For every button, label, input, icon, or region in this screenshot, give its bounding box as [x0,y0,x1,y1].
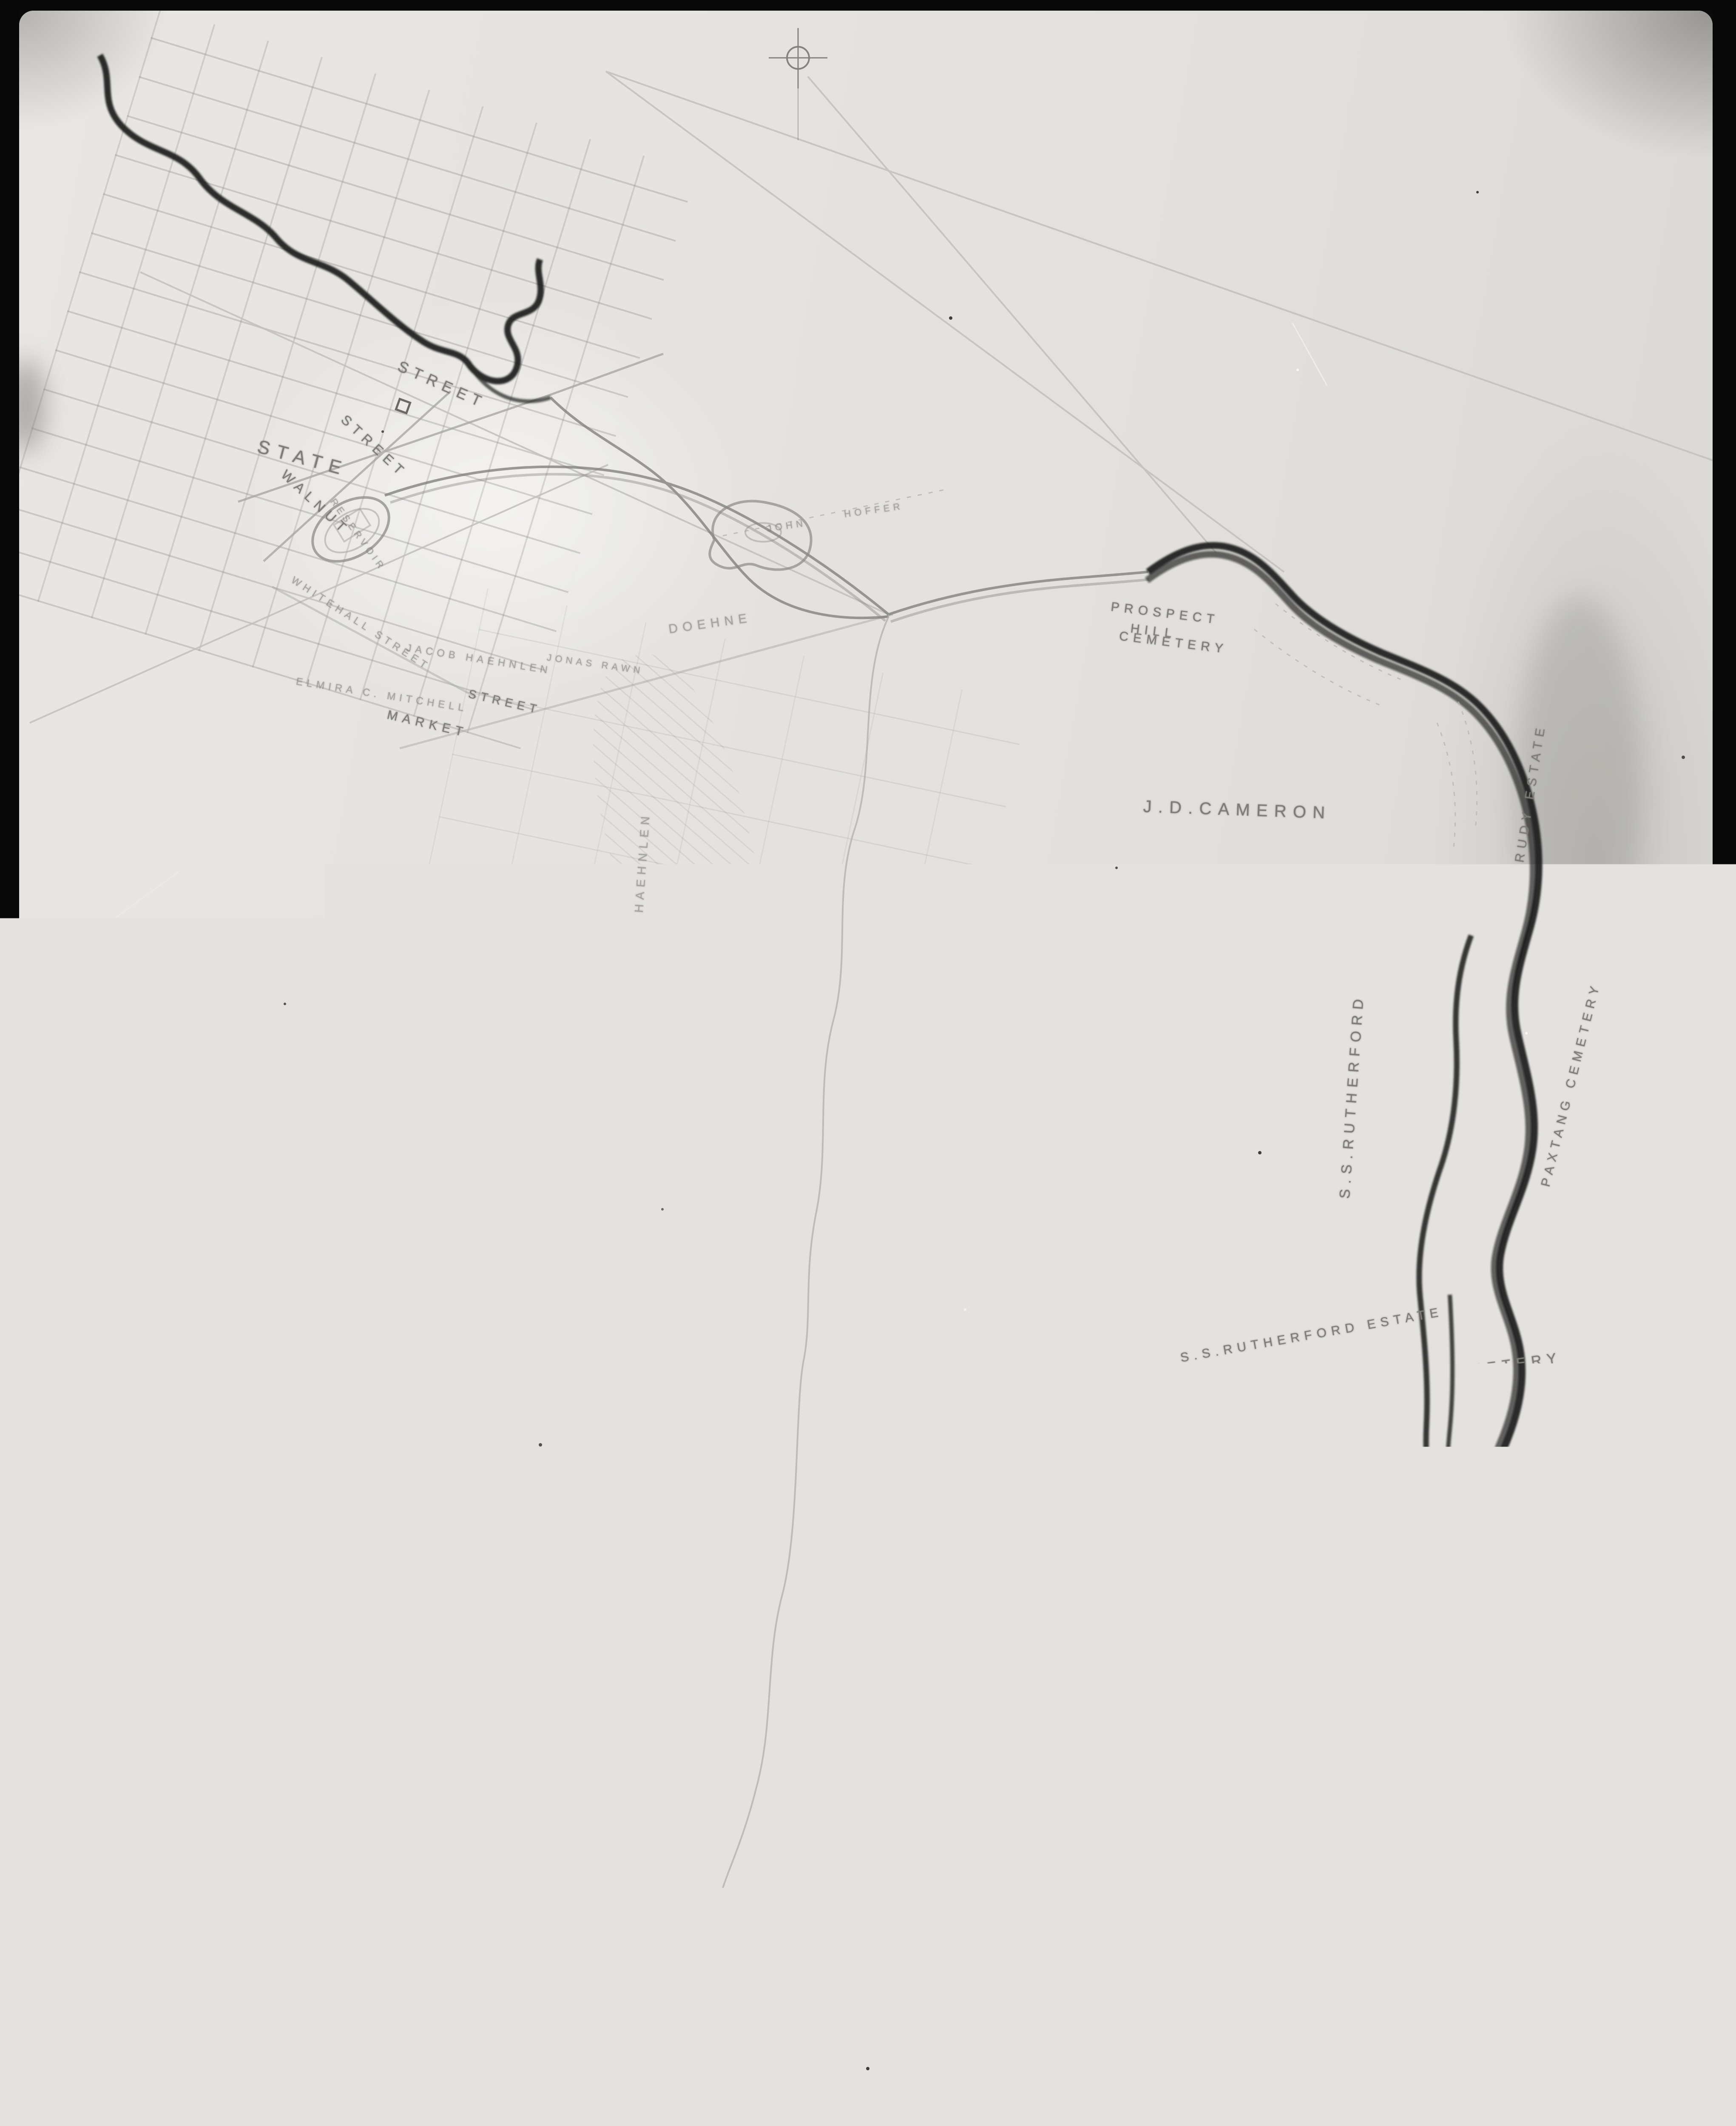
map-label-whitehall-street: WHITEHALL STREET [289,574,432,673]
map-label-derry-st: DERRY ST [1256,1380,1323,1413]
map-label-walnut-street-1: STREET [338,412,411,481]
map-label-john-hoffer-2: HOFFER [844,500,904,520]
map-label-ss-rutherford-est-2: S.S.RUTHERFORD ESTATE [1176,1455,1441,1506]
map-label-street-top: STREET [395,357,489,412]
map-label-calder: WM. CALDER · ROBERT G. CALDER [397,1859,704,1932]
map-label-jd-cameron-1: J.D.CAMERON [1143,797,1332,823]
frame-top [0,0,1736,11]
map-label-pa-rr: PA. R.R. [729,1424,794,1445]
map-label-paxton-st: PAXTON ST [592,1581,682,1625]
map-label-jd-cameron-3: J.D.CAMERON [962,1879,1104,1906]
map-label-doehne: DOEHNE [668,611,753,637]
map-label-ss-rutherford-est-1: S.S.RUTHERFORD ESTATE [1179,1305,1444,1365]
map-label-paxtang-cem-vert: PAXTANG CEMETERY [1539,980,1604,1188]
map-sheet: STREETSTATESTREETWALNUTRESERVOIRWHITEHAL… [19,11,1713,2126]
map-label-haehnlen-vertical: HAEHNLEN [632,811,653,913]
map-label-jd-cameron-2: J.D.CAMERON [801,1730,961,1766]
map-label-jonas-rawn: JONAS RAWN [546,652,645,676]
map-labels: STREETSTATESTREETWALNUTRESERVOIRWHITEHAL… [19,11,1713,2126]
map-label-state-street: STATE [255,436,350,481]
map-label-rudy-estate: RUDY ESTATE [1512,722,1548,864]
map-label-john-hoffer-1: JOHN [766,518,807,534]
map-label-manada-st: MANADA ST [554,1478,646,1521]
map-label-paxtang-cem-horiz: PAXTANG CEMETERY [1324,1350,1563,1399]
map-label-reservoir: RESERVOIR [328,497,388,574]
map-label-market-street-2: STREET [467,687,542,717]
map-label-ss-rutherford-vert: S.S.RUTHERFORD [1337,993,1368,1199]
map-label-prospect-hill-1: PROSPECT [1110,600,1220,628]
frame-right [1713,0,1736,2126]
frame-left [0,0,19,2126]
lantern-slide-photo: STREETSTATESTREETWALNUTRESERVOIRWHITEHAL… [0,0,1736,2126]
map-label-mitchell: ELMIRA C. MITCHELL [295,676,469,715]
map-label-jacob-haehnlen: JACOB HAEHNLEN [405,642,552,677]
